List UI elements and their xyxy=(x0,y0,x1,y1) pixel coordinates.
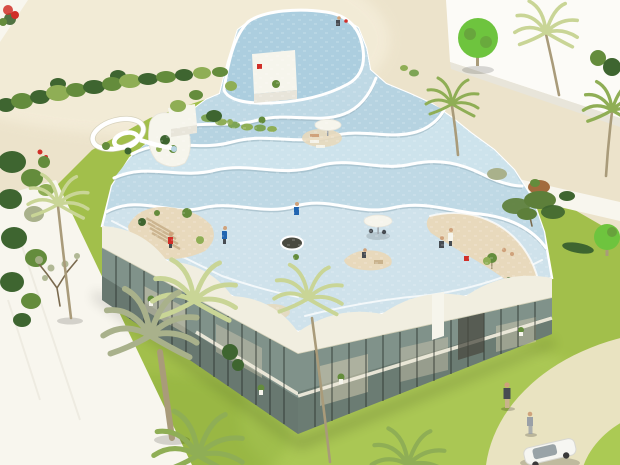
gray-shrub xyxy=(487,168,507,180)
slide-shrub xyxy=(125,148,132,155)
rendering-canvas xyxy=(0,0,620,465)
distant-tree xyxy=(590,50,606,66)
slide-shrub xyxy=(102,142,110,150)
moss-clump xyxy=(409,70,419,77)
red-flower xyxy=(38,150,43,155)
dark-entry xyxy=(458,313,484,360)
moss-clump xyxy=(400,65,408,71)
scene-svg xyxy=(0,0,620,465)
facade-pier xyxy=(432,292,444,340)
slide-splash xyxy=(171,146,177,152)
dark-bush xyxy=(232,359,244,371)
dark-bush xyxy=(222,344,238,360)
